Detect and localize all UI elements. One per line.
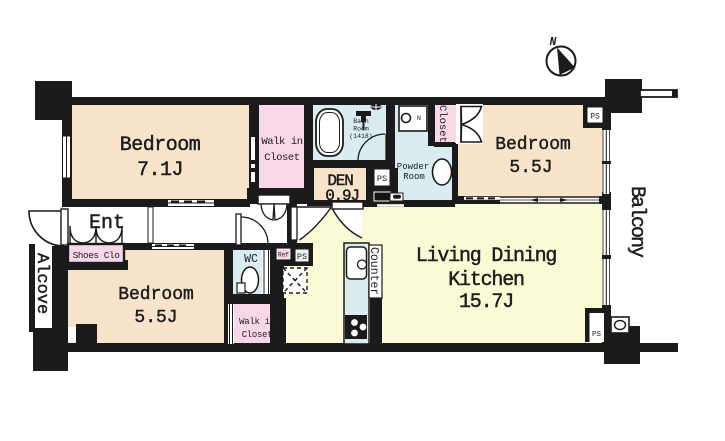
- svg-text:Living Dining: Living Dining: [416, 245, 557, 268]
- svg-text:Lin: Lin: [376, 195, 389, 203]
- svg-text:Bedroom: Bedroom: [120, 134, 201, 157]
- svg-text:N: N: [417, 115, 421, 122]
- svg-text:Powder: Powder: [397, 162, 429, 172]
- svg-text:Ent: Ent: [89, 212, 125, 235]
- svg-text:15.7J: 15.7J: [459, 291, 513, 314]
- svg-text:Closet: Closet: [436, 105, 448, 143]
- svg-text:N: N: [550, 36, 558, 49]
- svg-text:Walk in: Walk in: [261, 136, 302, 148]
- svg-text:Alcove: Alcove: [32, 253, 51, 314]
- svg-text:Bath: Bath: [353, 118, 369, 125]
- svg-text:5.5J: 5.5J: [509, 158, 552, 178]
- svg-text:5.5J: 5.5J: [134, 308, 177, 328]
- svg-text:Walk in: Walk in: [239, 317, 275, 327]
- svg-text:Room: Room: [403, 172, 425, 182]
- svg-text:Room: Room: [353, 126, 369, 133]
- svg-text:Balcony: Balcony: [625, 186, 648, 258]
- svg-text:PS: PS: [590, 113, 600, 122]
- svg-text:0.9J: 0.9J: [325, 187, 359, 205]
- svg-text:Closet: Closet: [264, 152, 300, 164]
- svg-text:Kitchen: Kitchen: [448, 269, 524, 292]
- svg-text:PS: PS: [377, 174, 387, 184]
- svg-text:Ref: Ref: [278, 252, 289, 259]
- svg-text:PS: PS: [297, 252, 307, 262]
- svg-text:WC: WC: [244, 253, 258, 266]
- svg-text:Bedroom: Bedroom: [495, 135, 571, 155]
- svg-text:PS: PS: [592, 331, 602, 339]
- svg-text:(1418): (1418): [349, 133, 372, 140]
- svg-text:7.1J: 7.1J: [137, 159, 183, 182]
- svg-text:Shoes Clo: Shoes Clo: [73, 250, 121, 261]
- svg-text:Closet: Closet: [242, 330, 273, 340]
- svg-text:Bedroom: Bedroom: [118, 285, 194, 305]
- svg-text:Counter: Counter: [367, 247, 380, 295]
